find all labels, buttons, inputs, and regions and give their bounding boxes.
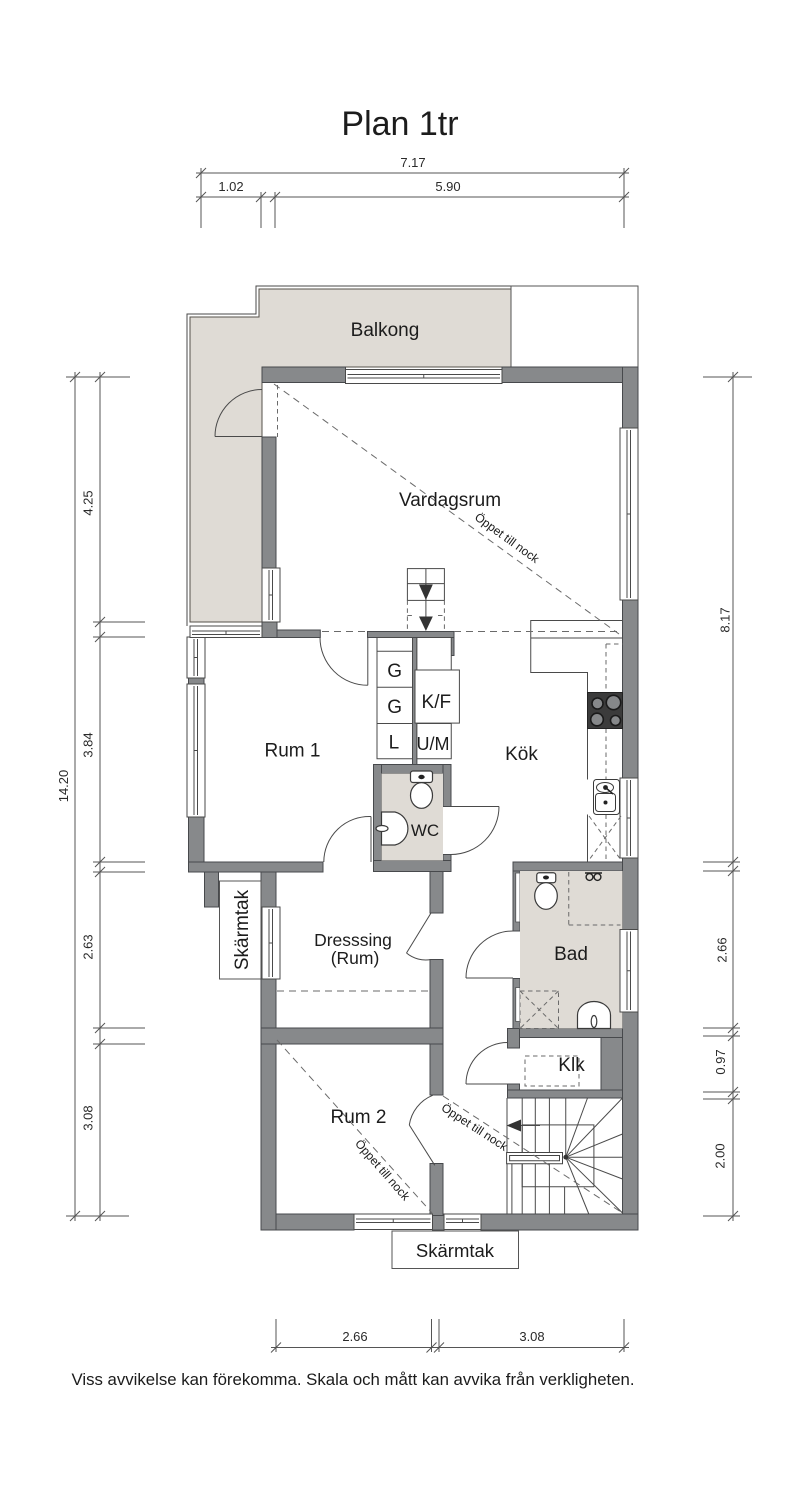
- svg-text:L: L: [389, 733, 400, 754]
- svg-text:Rum 1: Rum 1: [265, 741, 321, 762]
- svg-text:Skärmtak: Skärmtak: [416, 1240, 495, 1261]
- svg-text:Vardagsrum: Vardagsrum: [399, 490, 501, 511]
- svg-text:Klk: Klk: [558, 1055, 585, 1076]
- svg-text:G: G: [387, 697, 402, 718]
- svg-text:WC: WC: [411, 821, 439, 840]
- svg-text:4.25: 4.25: [81, 490, 96, 515]
- svg-text:2.66: 2.66: [715, 937, 730, 962]
- svg-text:Viss avvikelse kan förekomma.: Viss avvikelse kan förekomma. Skala och …: [71, 1370, 634, 1389]
- svg-text:(Rum): (Rum): [331, 948, 380, 968]
- svg-text:2.63: 2.63: [81, 934, 96, 959]
- svg-text:0.97: 0.97: [713, 1049, 728, 1074]
- svg-text:Rum 2: Rum 2: [331, 1107, 387, 1128]
- svg-text:Plan 1tr: Plan 1tr: [341, 105, 458, 143]
- svg-text:Balkong: Balkong: [351, 320, 420, 341]
- svg-text:Bad: Bad: [554, 944, 588, 965]
- svg-text:1.02: 1.02: [218, 179, 243, 194]
- svg-text:3.84: 3.84: [81, 732, 96, 757]
- svg-text:7.17: 7.17: [400, 155, 425, 170]
- svg-text:Dresssing: Dresssing: [314, 930, 392, 950]
- svg-text:2.00: 2.00: [713, 1143, 728, 1168]
- svg-text:U/M: U/M: [417, 734, 450, 754]
- svg-text:2.66: 2.66: [342, 1329, 367, 1344]
- svg-text:14.20: 14.20: [56, 770, 71, 803]
- svg-text:8.17: 8.17: [718, 607, 733, 632]
- svg-text:5.90: 5.90: [435, 179, 460, 194]
- svg-text:3.08: 3.08: [81, 1105, 96, 1130]
- svg-text:K/F: K/F: [422, 692, 452, 713]
- svg-text:Kök: Kök: [505, 744, 538, 765]
- svg-text:Skärmtak: Skärmtak: [232, 889, 253, 970]
- svg-text:G: G: [387, 661, 402, 682]
- svg-text:3.08: 3.08: [519, 1329, 544, 1344]
